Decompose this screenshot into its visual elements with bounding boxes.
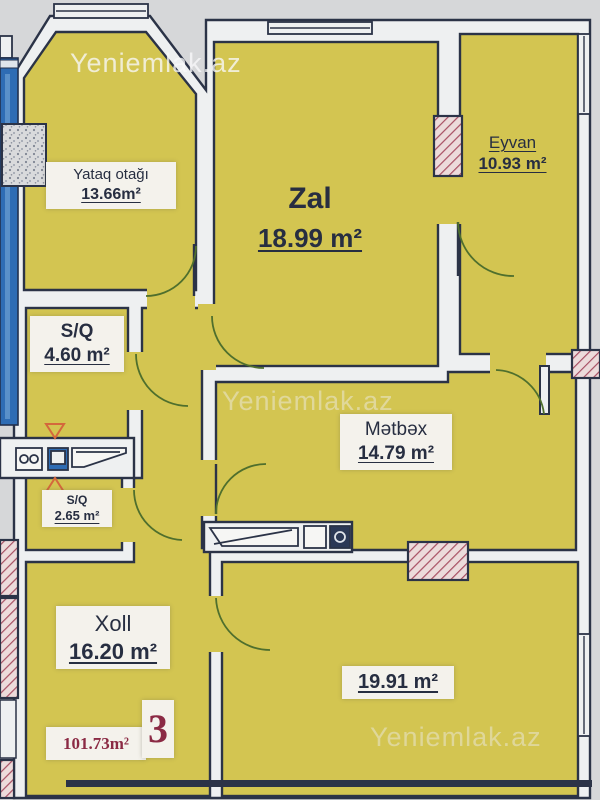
floor-plan: Yeniemlak.az Yeniemlak.az Yeniemlak.az Y…: [0, 0, 600, 800]
floor-plan-drawing: [0, 0, 600, 800]
hatch-column-living-balcony: [434, 116, 462, 176]
stipple-column: [2, 124, 46, 186]
room-wc-shape: [26, 476, 122, 550]
room-living-shape: [214, 42, 438, 366]
door-opening-balcony-kitchen: [490, 352, 546, 376]
hatch-left-bottom: [0, 760, 14, 798]
stove-icon: [330, 526, 350, 548]
bottom-wall: [66, 780, 592, 787]
door-opening-living: [198, 304, 216, 370]
hatch-column-kitchen-south: [408, 542, 468, 580]
door-opening-bedroom: [147, 284, 195, 310]
hatch-left-upper: [0, 540, 18, 596]
room-room2-shape: [222, 562, 578, 796]
blue-strip-band: [0, 60, 18, 68]
door-opening-balcony: [436, 174, 462, 224]
left-wall-segment: [0, 700, 16, 758]
hatch-left-lower: [0, 598, 18, 698]
room-bath-shape: [26, 308, 128, 440]
room-bedroom-shape: [24, 32, 196, 290]
counter-square-icon: [304, 526, 326, 548]
hatch-column-right: [572, 350, 600, 378]
room-balcony-shape: [460, 34, 578, 354]
door-leaf-balcony-kitchen: [540, 366, 549, 414]
left-wall-nub: [0, 36, 12, 58]
